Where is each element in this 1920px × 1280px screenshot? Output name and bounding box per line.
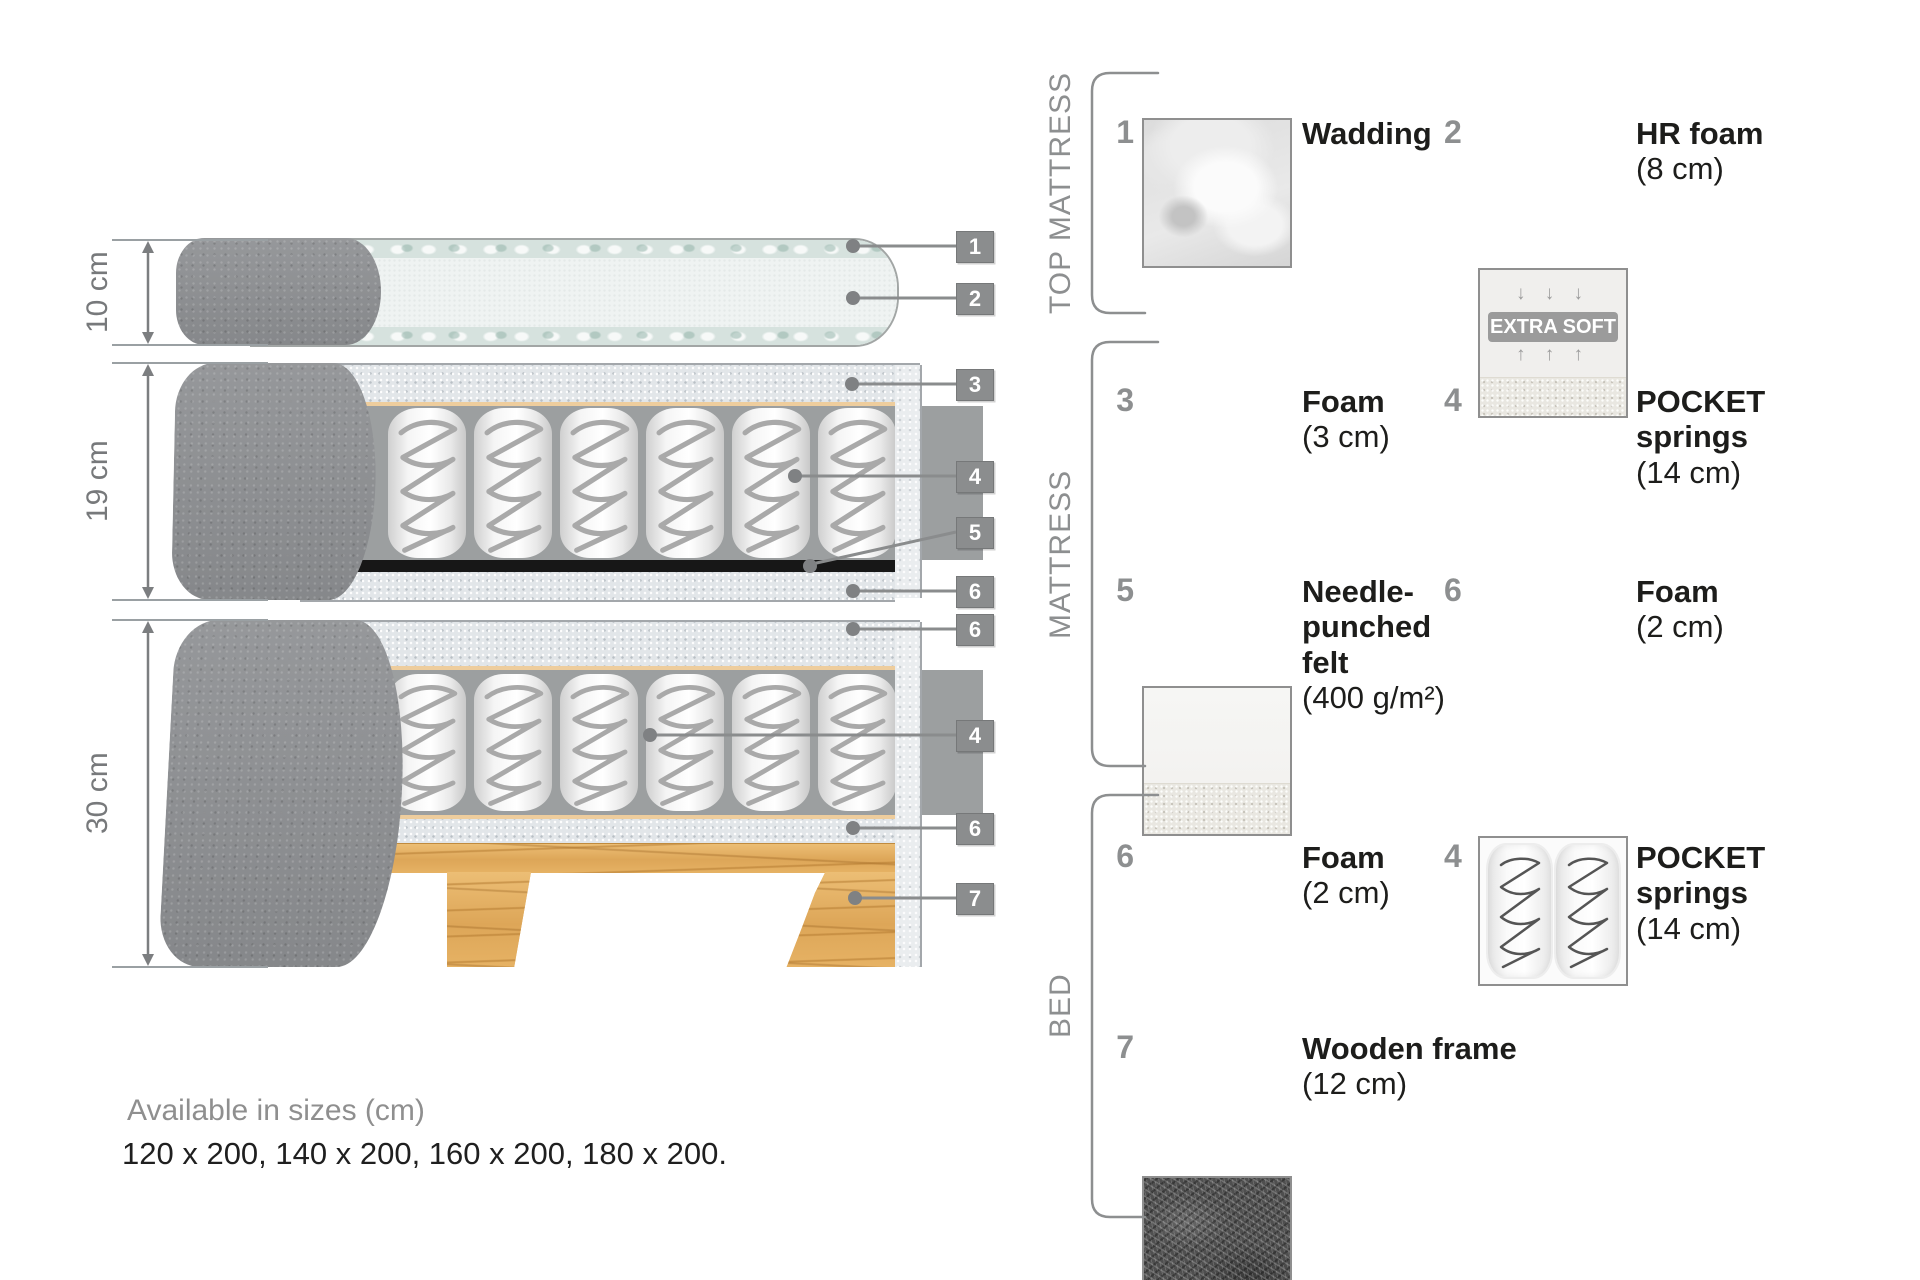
pocket-spring xyxy=(560,674,638,811)
bed-pocket-springs-row xyxy=(300,670,983,815)
legend-num-wooden-frame: 7 xyxy=(1086,1029,1134,1066)
extra-soft-banner: EXTRA SOFT xyxy=(1488,312,1618,342)
legend-num-felt: 5 xyxy=(1086,572,1134,609)
callout-box-6-mattress: 6 xyxy=(956,576,994,608)
legend-num-foam-2-bed: 6 xyxy=(1086,838,1134,875)
dimension-label-mattress: 19 cm xyxy=(72,363,124,600)
pocket-spring-illustration xyxy=(1488,845,1551,977)
callout-box-4: 4 xyxy=(956,461,994,493)
pocket-spring xyxy=(818,674,896,811)
arrows-down-icon: ↓ ↓ ↓ xyxy=(1480,283,1626,305)
legend-num-pocket-springs: 4 xyxy=(1444,382,1484,419)
bed-cover xyxy=(158,620,411,967)
material-detail: (12 cm) xyxy=(1302,1066,1582,1101)
felt-swatch xyxy=(1142,1176,1292,1280)
legend-num-wadding: 1 xyxy=(1086,114,1134,151)
legend-label-foam-2-mattress: Foam (2 cm) xyxy=(1636,574,1856,645)
sizes-list: 120 x 200, 140 x 200, 160 x 200, 180 x 2… xyxy=(122,1136,727,1172)
callout-box-3: 3 xyxy=(956,369,994,401)
callout-box-5: 5 xyxy=(956,517,994,549)
material-detail: (14 cm) xyxy=(1636,911,1856,946)
material-name: HR foam xyxy=(1636,116,1856,151)
callout-box-6-bed-bottom: 6 xyxy=(956,813,994,845)
pocket-spring xyxy=(646,408,724,558)
material-detail: (2 cm) xyxy=(1636,609,1856,644)
dimension-label-top-mattress: 10 cm xyxy=(72,240,124,345)
section-label-bed: BED xyxy=(1034,795,1088,1217)
pocket-spring xyxy=(732,674,810,811)
mattress-bottom-foam-layer xyxy=(300,572,895,602)
material-name: Wooden frame xyxy=(1302,1031,1582,1066)
pocket-spring xyxy=(560,408,638,558)
material-name: POCKET springs xyxy=(1636,840,1856,911)
pocket-spring-illustration xyxy=(1556,845,1619,977)
hr-foam-swatch: ↓ ↓ ↓ EXTRA SOFT ↑ ↑ ↑ xyxy=(1478,268,1628,418)
section-label-mattress: MATTRESS xyxy=(1034,342,1088,766)
mattress-cover xyxy=(171,363,378,600)
pocket-spring xyxy=(388,408,466,558)
wadding-swatch xyxy=(1142,118,1292,268)
callout-box-2: 2 xyxy=(956,283,994,315)
callout-box-1: 1 xyxy=(956,231,994,263)
material-name: Foam xyxy=(1636,574,1856,609)
legend-num-foam-3: 3 xyxy=(1086,382,1134,419)
material-detail: (3 cm) xyxy=(1302,419,1482,454)
bed-side-edge xyxy=(895,622,922,967)
mattress-side-edge xyxy=(895,365,922,598)
pocket-springs-swatch xyxy=(1478,836,1628,986)
dimension-label-bed: 30 cm xyxy=(72,620,124,967)
pocket-spring xyxy=(646,674,724,811)
pocket-spring xyxy=(474,674,552,811)
infographic-canvas: 1 2 3 4 5 6 6 4 6 7 10 cm 19 cm 30 cm xyxy=(0,0,1920,1280)
sizes-title: Available in sizes (cm) xyxy=(127,1094,425,1128)
bed-wooden-rail xyxy=(320,843,895,873)
legend-label-pocket-springs-bed: POCKET springs (14 cm) xyxy=(1636,840,1856,946)
material-detail: (400 g/m²) xyxy=(1302,680,1492,715)
mattress-pocket-springs-row xyxy=(300,406,983,560)
section-label-top-mattress: TOP MATTRESS xyxy=(1034,73,1088,313)
legend-label-hr-foam: HR foam (8 cm) xyxy=(1636,116,1856,187)
callout-box-7: 7 xyxy=(956,883,994,915)
material-detail: (14 cm) xyxy=(1636,455,1856,490)
foam-base-texture xyxy=(1144,783,1290,834)
pocket-spring xyxy=(474,408,552,558)
mattress-top-foam-layer xyxy=(300,363,920,404)
pocket-spring xyxy=(732,408,810,558)
callout-box-4-bed: 4 xyxy=(956,720,994,752)
mattress-felt-layer xyxy=(300,560,895,572)
bed-top-foam-layer xyxy=(300,620,920,668)
material-name: POCKET springs xyxy=(1636,384,1856,455)
foam-3cm-swatch xyxy=(1142,686,1292,836)
foam-base-texture xyxy=(1480,377,1626,416)
top-mattress-cover xyxy=(176,238,381,345)
legend-num-foam-2-mattress: 6 xyxy=(1444,572,1484,609)
legend-num-pocket-springs-bed: 4 xyxy=(1444,838,1484,875)
material-detail: (2 cm) xyxy=(1302,875,1482,910)
material-detail: (8 cm) xyxy=(1636,151,1856,186)
pocket-spring xyxy=(818,408,896,558)
legend-label-pocket-springs: POCKET springs (14 cm) xyxy=(1636,384,1856,490)
callout-box-6-bed-top: 6 xyxy=(956,614,994,646)
legend-num-hr-foam: 2 xyxy=(1444,114,1484,151)
legend-label-wooden-frame: Wooden frame (12 cm) xyxy=(1302,1031,1582,1102)
arrows-up-icon: ↑ ↑ ↑ xyxy=(1480,344,1626,366)
